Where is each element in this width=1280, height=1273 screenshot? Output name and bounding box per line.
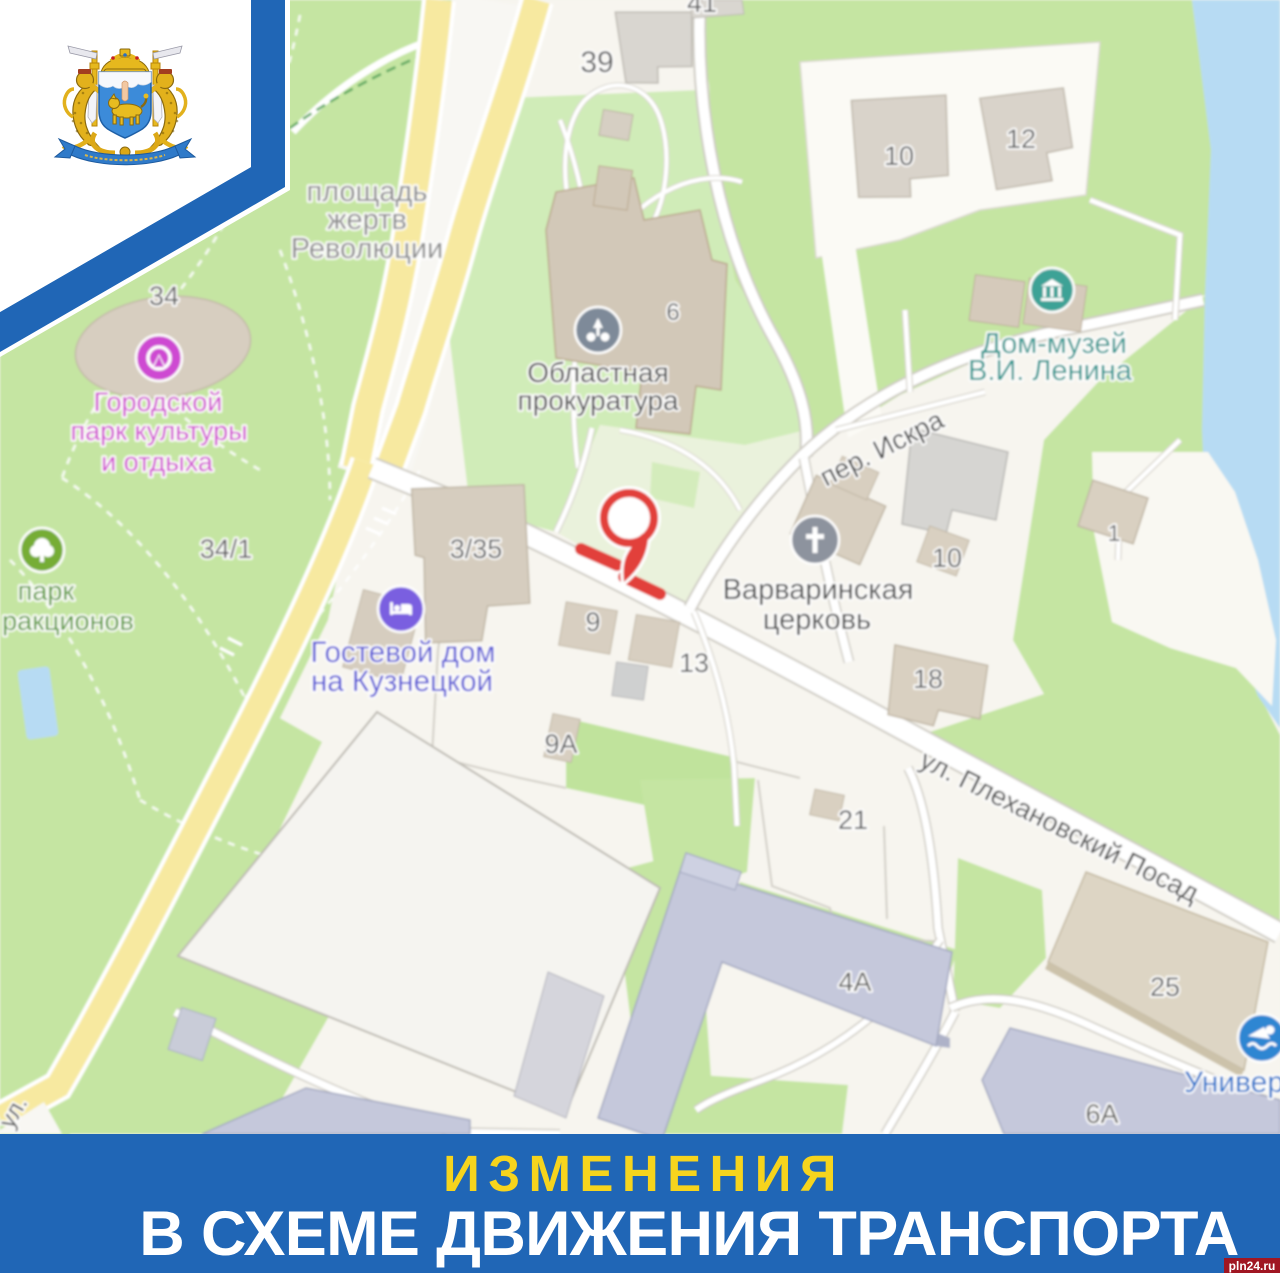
svg-text:21: 21: [838, 805, 868, 835]
svg-text:39: 39: [580, 46, 613, 79]
svg-text:6: 6: [666, 299, 679, 326]
svg-text:церковь: церковь: [763, 604, 871, 636]
svg-text:3/35: 3/35: [450, 534, 503, 564]
svg-text:41: 41: [687, 0, 717, 18]
svg-text:Варваринская: Варваринская: [723, 574, 914, 606]
svg-text:и отдыха: и отдыха: [101, 447, 214, 477]
svg-text:Универси: Универси: [1184, 1066, 1280, 1099]
svg-text:12: 12: [1006, 124, 1036, 154]
svg-text:на Кузнецкой: на Кузнецкой: [311, 665, 493, 698]
svg-text:В СХЕМЕ ДВИЖЕНИЯ ТРАНСПОРТА: В СХЕМЕ ДВИЖЕНИЯ ТРАНСПОРТА: [139, 1199, 1238, 1269]
svg-text:25: 25: [1150, 972, 1180, 1002]
svg-text:34/1: 34/1: [200, 534, 253, 564]
svg-text:ИЗМЕНЕНИЯ: ИЗМЕНЕНИЯ: [443, 1145, 845, 1202]
svg-text:прокуратура: прокуратура: [517, 385, 678, 416]
svg-text:жертв: жертв: [327, 204, 407, 236]
svg-text:9А: 9А: [544, 729, 577, 759]
svg-text:18: 18: [913, 664, 943, 694]
svg-text:34: 34: [149, 281, 179, 311]
svg-text:Городской: Городской: [94, 387, 223, 417]
svg-text:10: 10: [884, 141, 914, 171]
svg-text:6А: 6А: [1085, 1099, 1118, 1129]
svg-text:Революции: Революции: [291, 233, 443, 265]
svg-text:парк культуры: парк культуры: [71, 416, 248, 446]
svg-text:Областная: Областная: [527, 357, 669, 388]
svg-text:13: 13: [679, 648, 709, 678]
svg-text:10: 10: [932, 543, 962, 573]
svg-text:В.И. Ленина: В.И. Ленина: [968, 355, 1133, 387]
svg-text:pln24.ru: pln24.ru: [1229, 1259, 1276, 1273]
svg-text:ракционов: ракционов: [2, 606, 134, 636]
svg-text:4А: 4А: [838, 967, 871, 997]
svg-text:9: 9: [585, 607, 600, 637]
svg-text:парк: парк: [18, 576, 75, 606]
svg-text:1: 1: [1108, 520, 1121, 546]
